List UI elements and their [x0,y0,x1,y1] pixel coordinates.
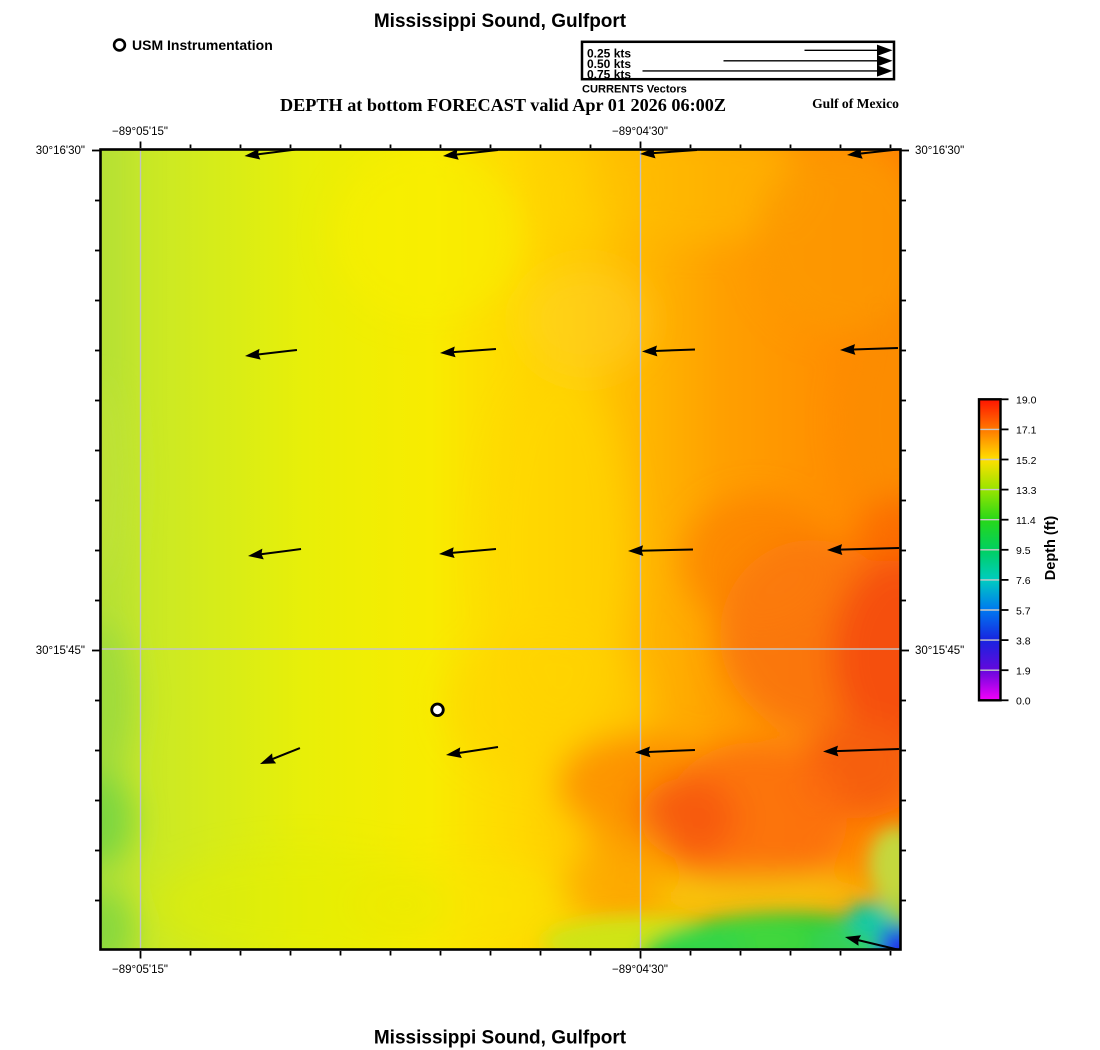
svg-text:30°16'30": 30°16'30" [915,145,964,157]
svg-text:−89°05'15": −89°05'15" [112,126,168,138]
svg-text:11.4: 11.4 [1016,515,1036,527]
svg-text:1.9: 1.9 [1016,666,1031,678]
svg-text:0.0: 0.0 [1016,696,1031,708]
svg-text:5.7: 5.7 [1016,605,1031,617]
svg-text:−89°04'30": −89°04'30" [612,964,668,976]
svg-text:13.3: 13.3 [1016,485,1037,497]
svg-text:30°16'30": 30°16'30" [36,145,85,157]
svg-text:Gulf of Mexico: Gulf of Mexico [812,96,899,111]
svg-text:15.2: 15.2 [1016,455,1037,467]
svg-text:Mississippi Sound, Gulfport: Mississippi Sound, Gulfport [374,1028,627,1049]
svg-text:DEPTH at bottom FORECAST valid: DEPTH at bottom FORECAST valid Apr 01 20… [280,95,726,115]
svg-text:30°15'45": 30°15'45" [915,645,964,657]
svg-text:Mississippi Sound, Gulfport: Mississippi Sound, Gulfport [374,11,627,32]
svg-text:17.1: 17.1 [1016,425,1037,437]
svg-text:19.0: 19.0 [1016,395,1037,407]
svg-text:9.5: 9.5 [1016,545,1031,557]
svg-text:7.6: 7.6 [1016,575,1031,587]
svg-text:CURRENTS Vectors: CURRENTS Vectors [582,83,687,95]
svg-text:0.75 kts: 0.75 kts [587,67,631,81]
svg-text:USM Instrumentation: USM Instrumentation [132,37,273,53]
svg-text:Depth (ft): Depth (ft) [1043,516,1059,581]
svg-text:−89°05'15": −89°05'15" [112,964,168,976]
svg-text:30°15'45": 30°15'45" [36,645,85,657]
svg-text:−89°04'30": −89°04'30" [612,126,668,138]
svg-text:3.8: 3.8 [1016,635,1031,647]
